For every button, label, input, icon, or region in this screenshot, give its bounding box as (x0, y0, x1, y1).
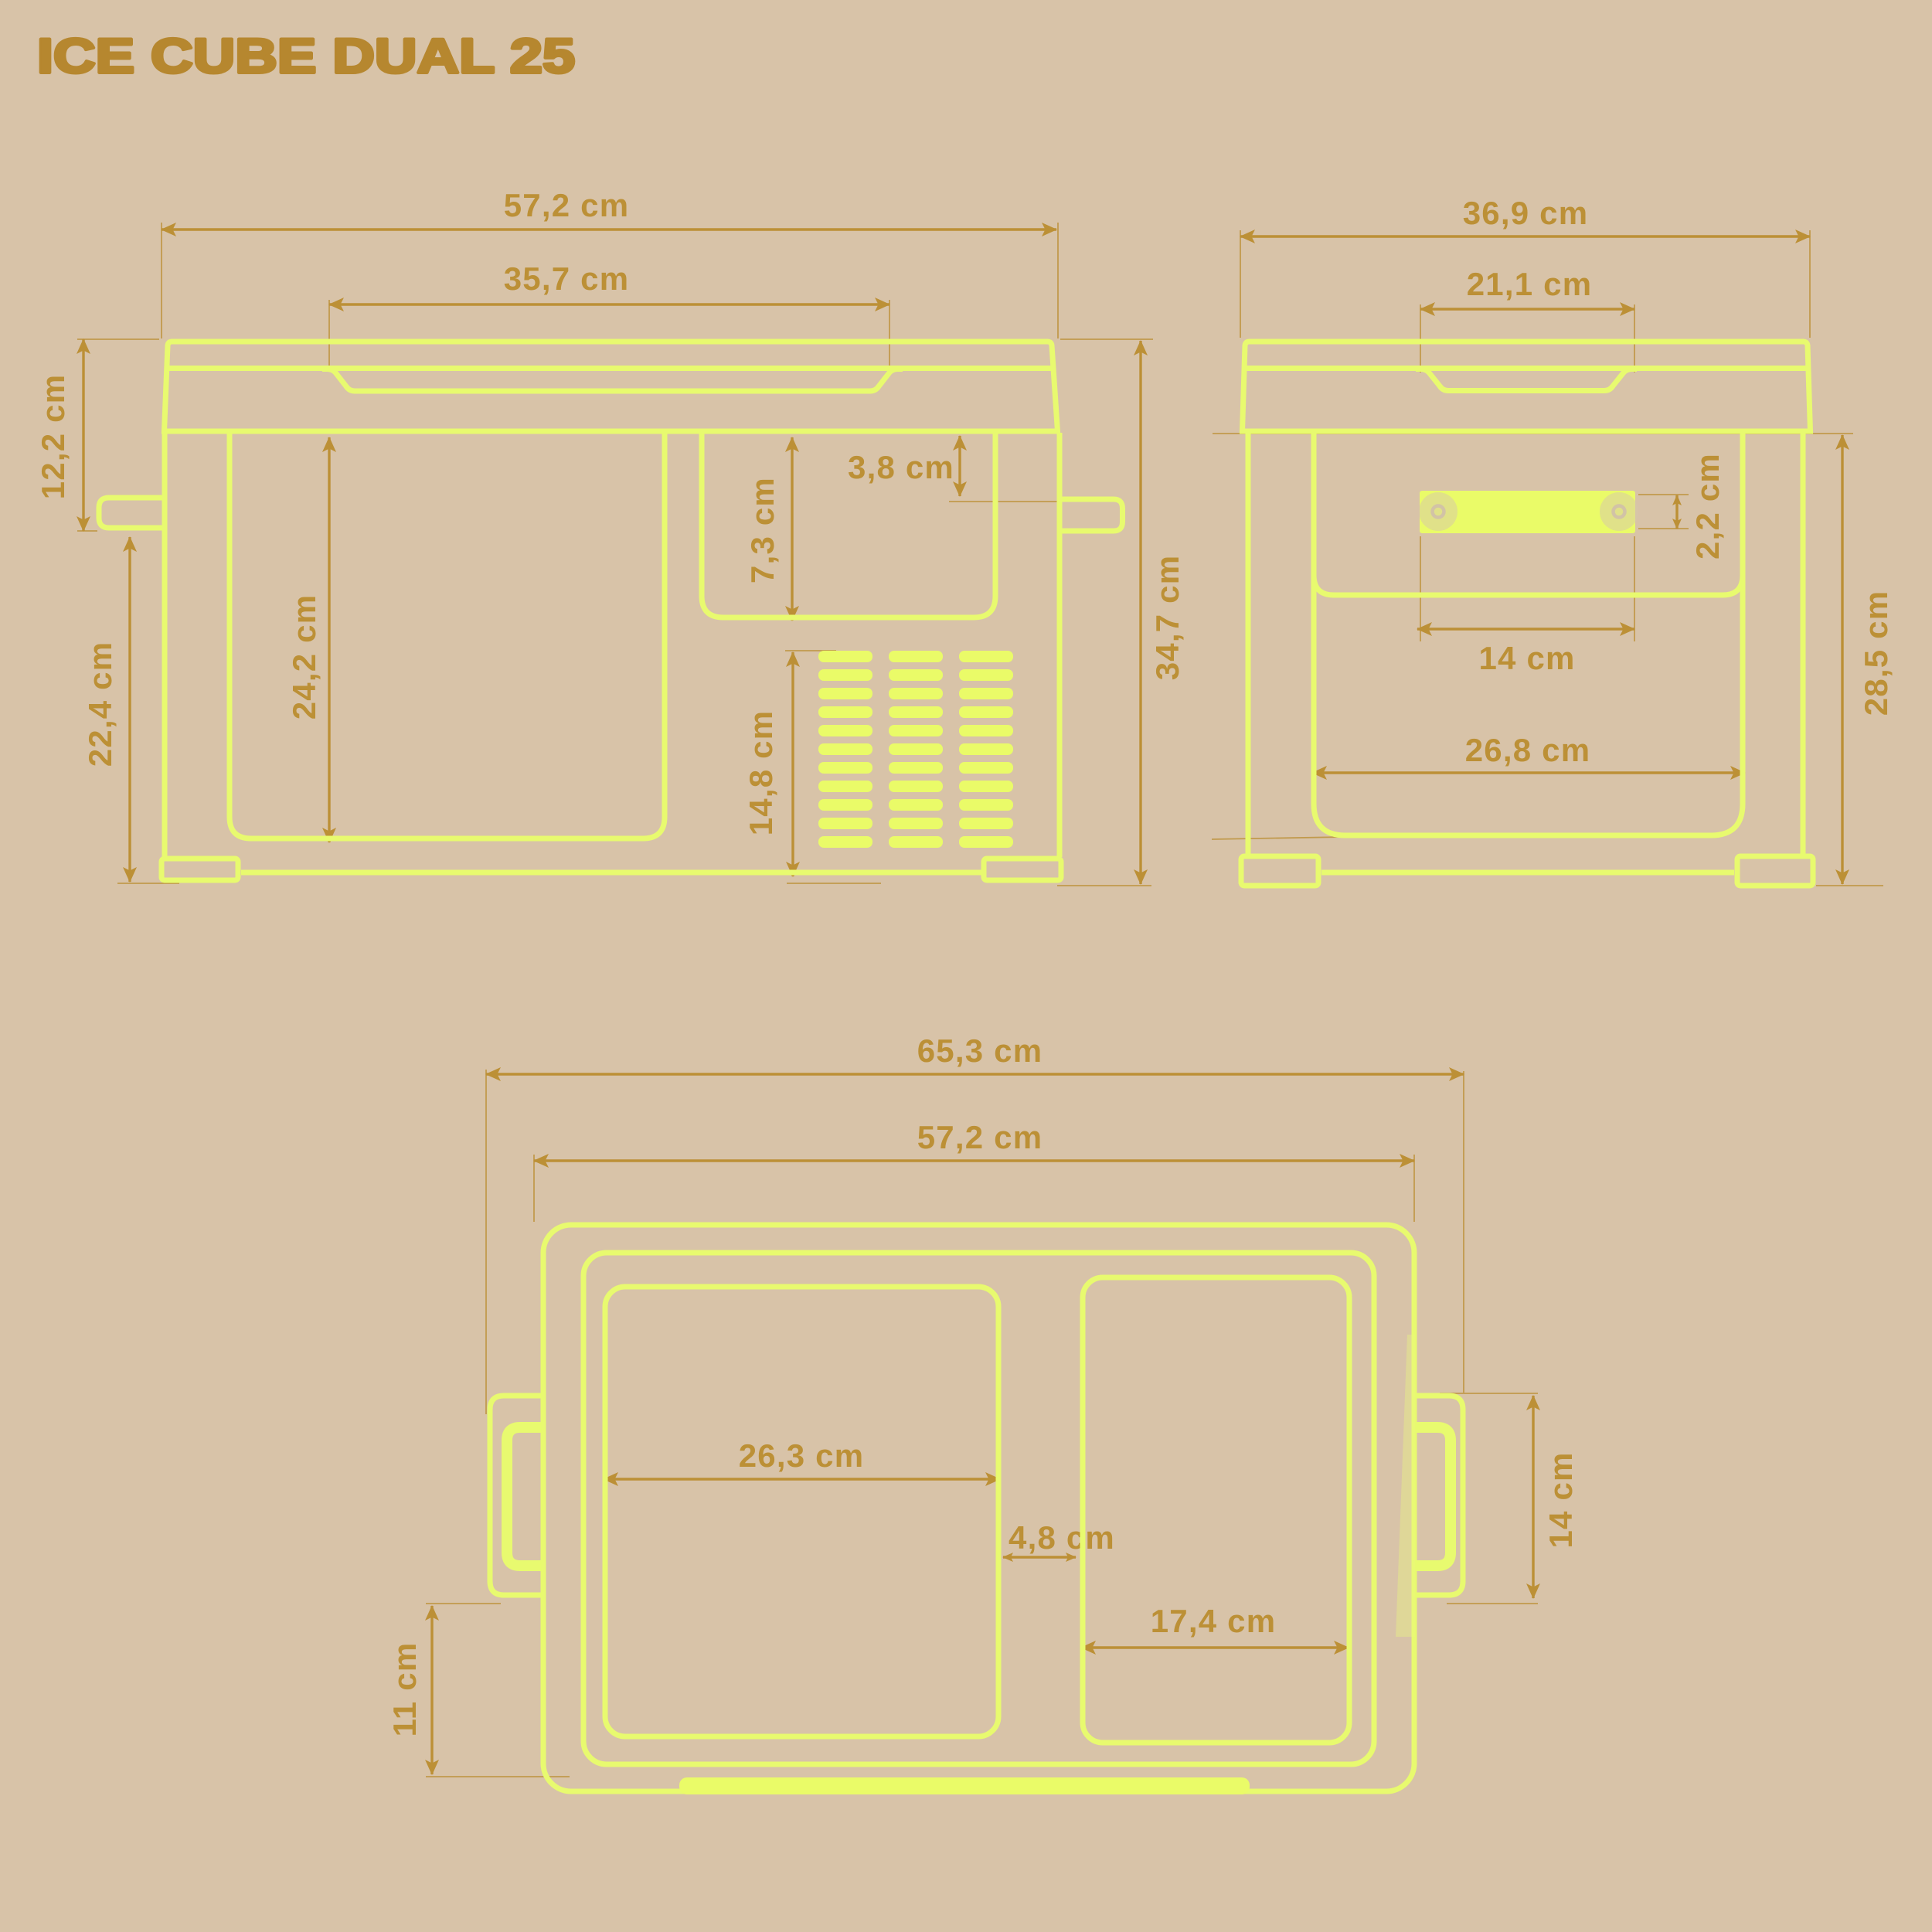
svg-text:57,2 cm: 57,2 cm (504, 187, 630, 223)
svg-text:3,8 cm: 3,8 cm (848, 449, 954, 485)
svg-text:57,2 cm: 57,2 cm (917, 1119, 1043, 1155)
svg-text:35,7 cm: 35,7 cm (504, 260, 630, 297)
svg-text:4,8 cm: 4,8 cm (1009, 1519, 1115, 1556)
svg-text:65,3 cm: 65,3 cm (917, 1032, 1043, 1069)
svg-text:12,2 cm: 12,2 cm (35, 374, 71, 500)
svg-text:14 cm: 14 cm (1543, 1451, 1579, 1548)
svg-text:28,5 cm: 28,5 cm (1858, 590, 1894, 716)
svg-text:21,1 cm: 21,1 cm (1467, 266, 1593, 302)
svg-text:17,4 cm: 17,4 cm (1151, 1603, 1277, 1639)
svg-text:26,3 cm: 26,3 cm (739, 1437, 865, 1474)
svg-text:ICE CUBE DUAL 25: ICE CUBE DUAL 25 (37, 29, 575, 83)
svg-text:14,8 cm: 14,8 cm (743, 710, 779, 836)
svg-text:34,7 cm: 34,7 cm (1149, 555, 1185, 681)
svg-text:22,4 cm: 22,4 cm (82, 641, 118, 767)
svg-text:36,9 cm: 36,9 cm (1463, 195, 1589, 231)
svg-text:7,3 cm: 7,3 cm (744, 477, 781, 583)
svg-text:24,2 cm: 24,2 cm (286, 594, 322, 720)
svg-text:26,8 cm: 26,8 cm (1465, 732, 1591, 768)
svg-text:11 cm: 11 cm (386, 1642, 423, 1737)
svg-text:14 cm: 14 cm (1478, 640, 1575, 676)
svg-text:2,2 cm: 2,2 cm (1689, 453, 1726, 560)
